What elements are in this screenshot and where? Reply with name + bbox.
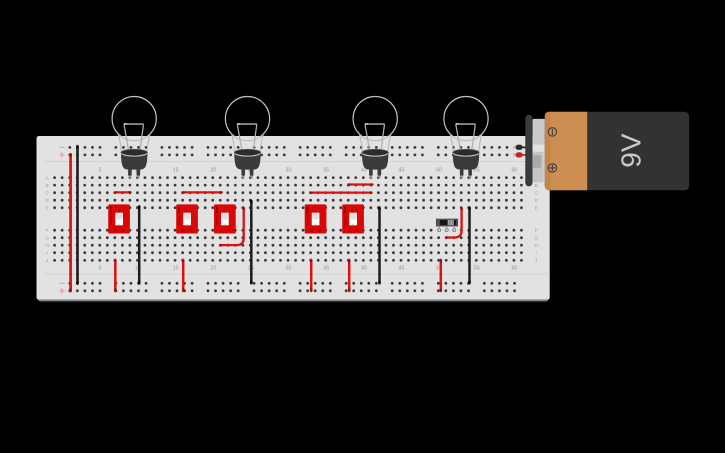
svg-text:30: 30 [286, 168, 292, 174]
svg-text:60: 60 [511, 168, 517, 174]
svg-text:40: 40 [361, 266, 367, 272]
svg-text:B: B [46, 183, 49, 188]
svg-text:F: F [535, 228, 538, 233]
svg-text:1: 1 [314, 208, 317, 213]
svg-text:20: 20 [210, 168, 216, 174]
svg-text:1: 1 [117, 208, 120, 213]
svg-text:30: 30 [286, 266, 292, 272]
svg-text:55: 55 [474, 266, 480, 272]
svg-text:50: 50 [436, 168, 442, 174]
svg-text:J: J [535, 258, 537, 263]
svg-text:I: I [536, 251, 537, 256]
svg-text:1: 1 [223, 208, 226, 213]
svg-text:H: H [46, 243, 49, 248]
svg-text:45: 45 [399, 168, 405, 174]
svg-text:20: 20 [210, 266, 216, 272]
svg-text:1: 1 [185, 208, 188, 213]
svg-text:E: E [46, 206, 49, 211]
svg-text:35: 35 [323, 168, 329, 174]
svg-text:E: E [535, 206, 538, 211]
svg-text:5: 5 [99, 266, 102, 272]
svg-text:1: 1 [351, 208, 354, 213]
svg-text:5: 5 [99, 168, 102, 174]
svg-text:G: G [45, 236, 49, 241]
svg-text:60: 60 [511, 266, 517, 272]
svg-text:F: F [46, 228, 49, 233]
svg-text:I: I [47, 251, 48, 256]
svg-text:9V: 9V [616, 133, 647, 168]
svg-text:15: 15 [173, 266, 179, 272]
svg-text:35: 35 [323, 266, 329, 272]
svg-text:15: 15 [173, 168, 179, 174]
svg-text:45: 45 [399, 266, 405, 272]
svg-text:G: G [534, 236, 538, 241]
svg-text:J: J [46, 258, 48, 263]
svg-text:B: B [535, 183, 538, 188]
svg-text:H: H [535, 243, 538, 248]
